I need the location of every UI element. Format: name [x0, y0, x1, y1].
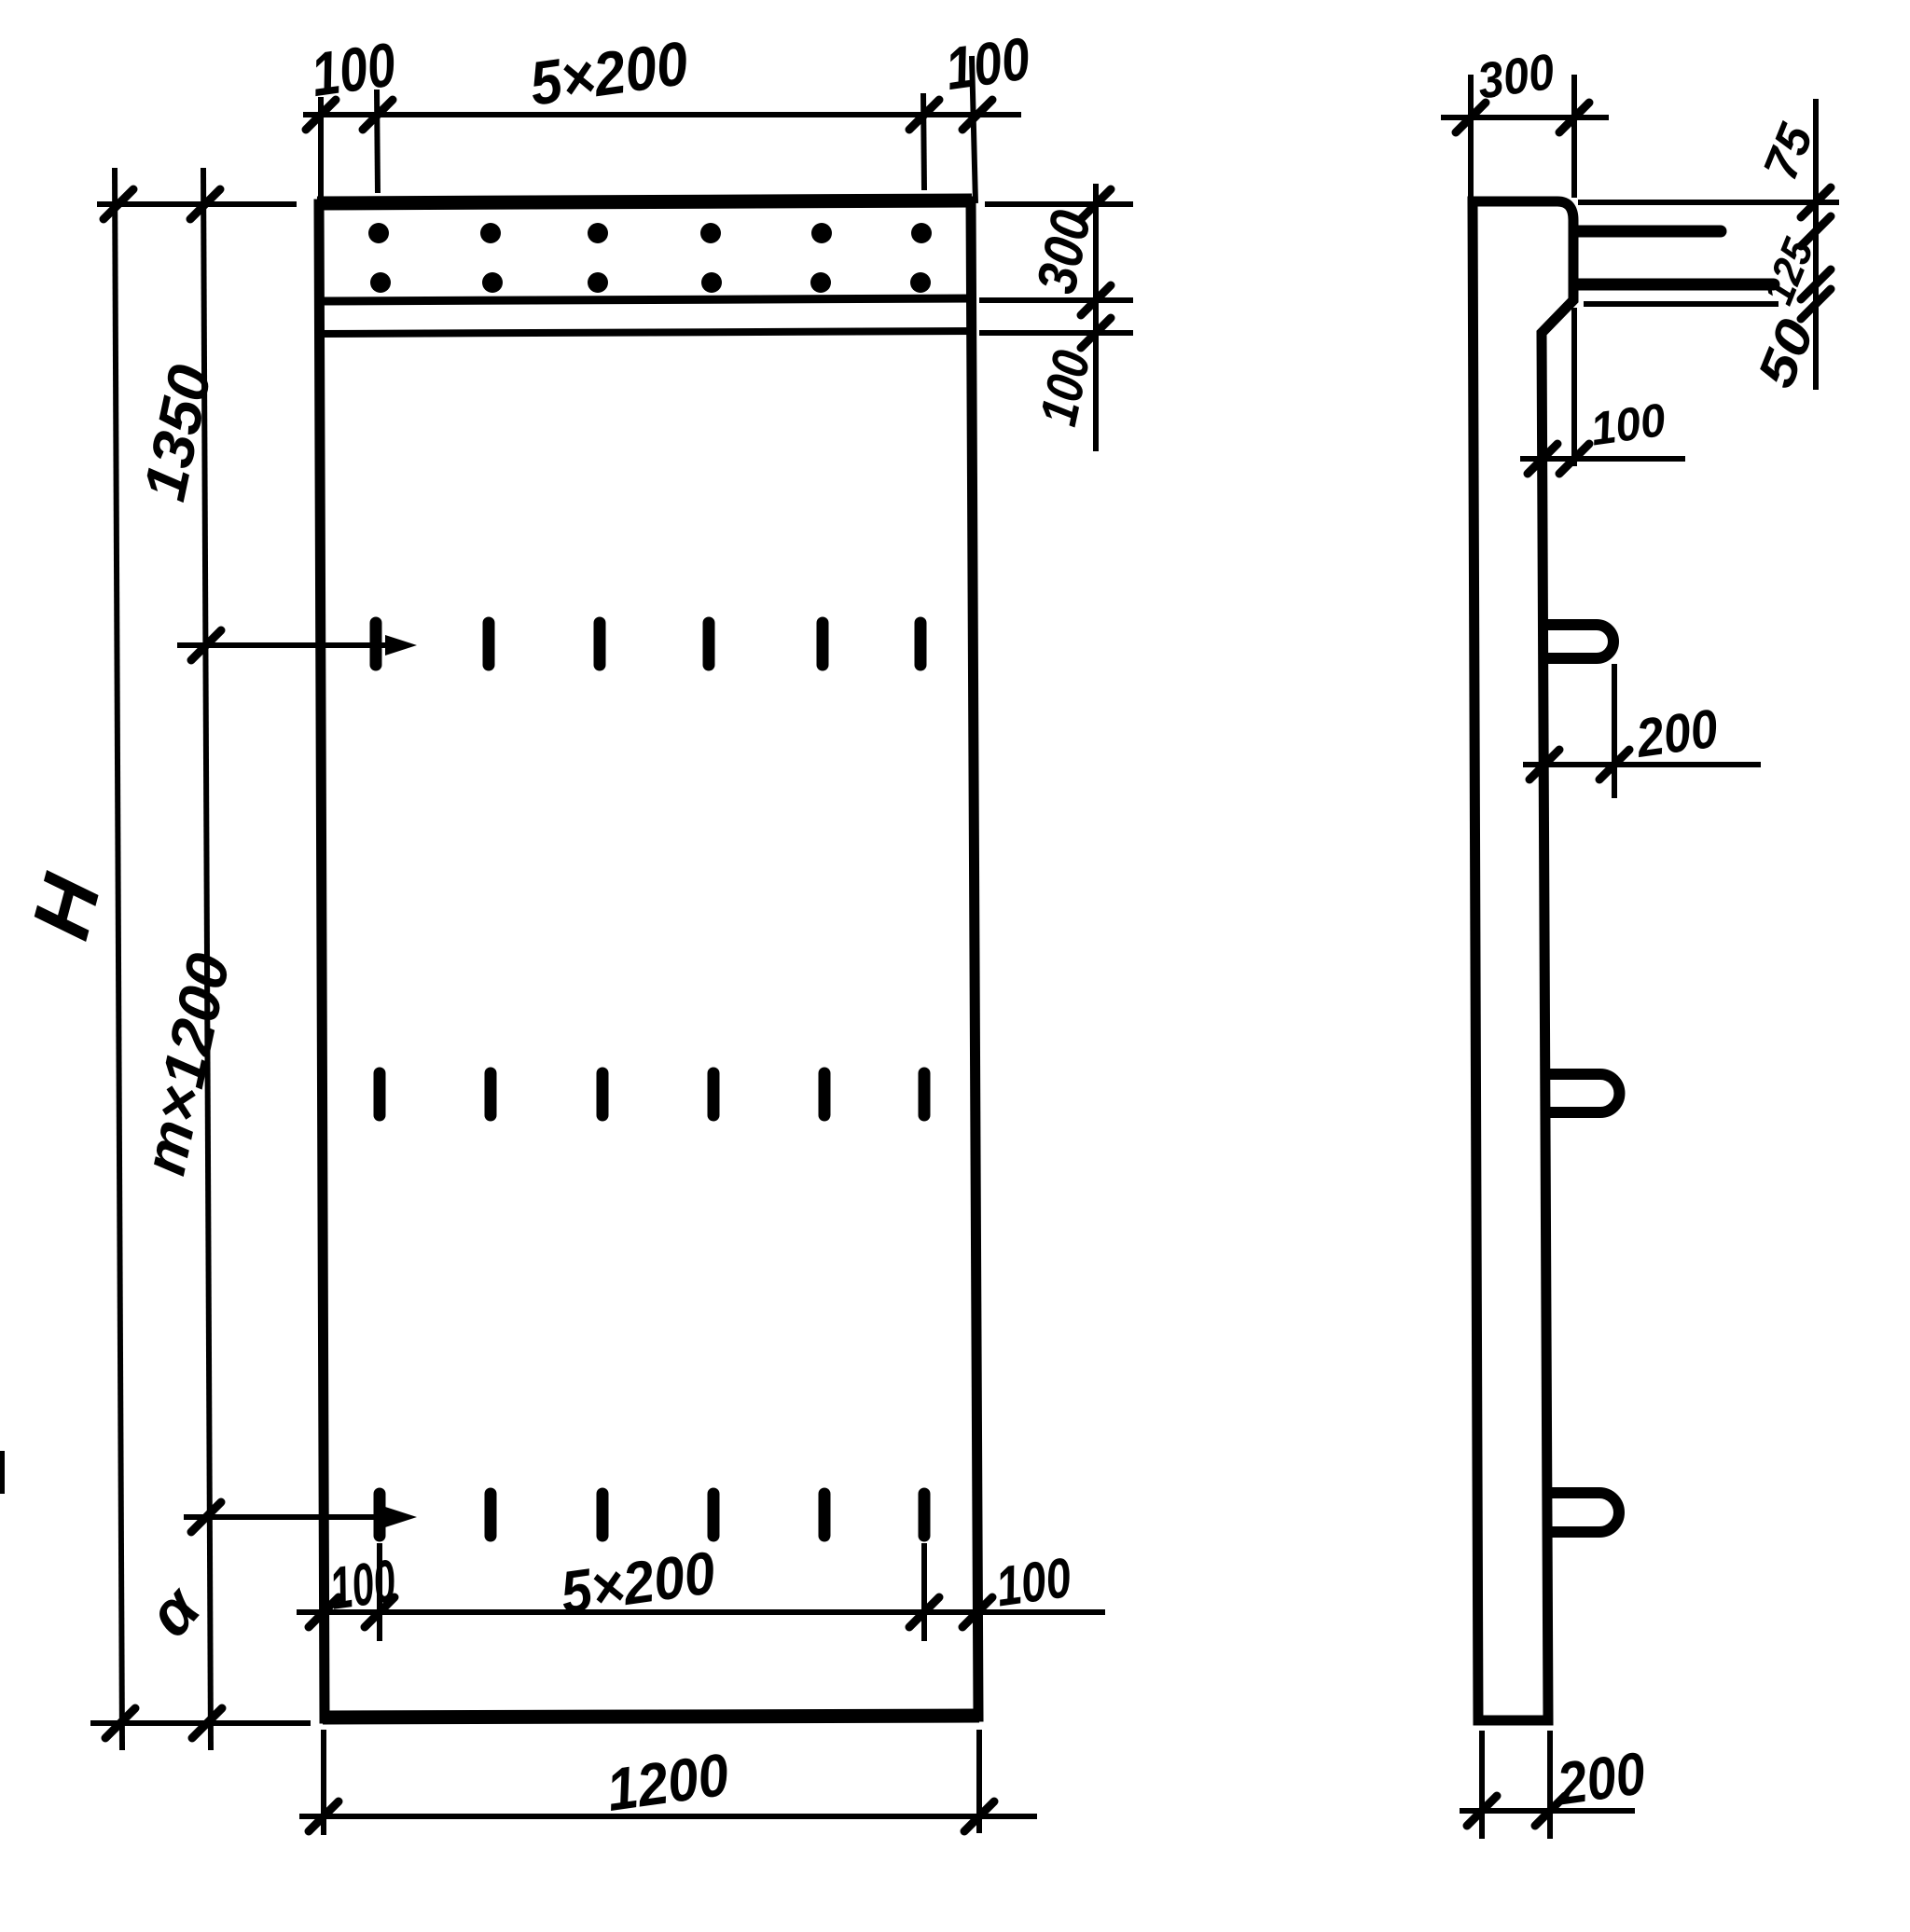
svg-text:100: 100: [992, 1546, 1075, 1618]
svg-text:100: 100: [307, 29, 400, 109]
svg-text:200: 200: [1553, 1739, 1650, 1818]
svg-text:300: 300: [1474, 44, 1558, 110]
svg-text:100: 100: [325, 1547, 399, 1622]
svg-text:100: 100: [941, 24, 1033, 103]
svg-text:200: 200: [1632, 697, 1722, 769]
svg-text:100: 100: [1587, 393, 1668, 456]
